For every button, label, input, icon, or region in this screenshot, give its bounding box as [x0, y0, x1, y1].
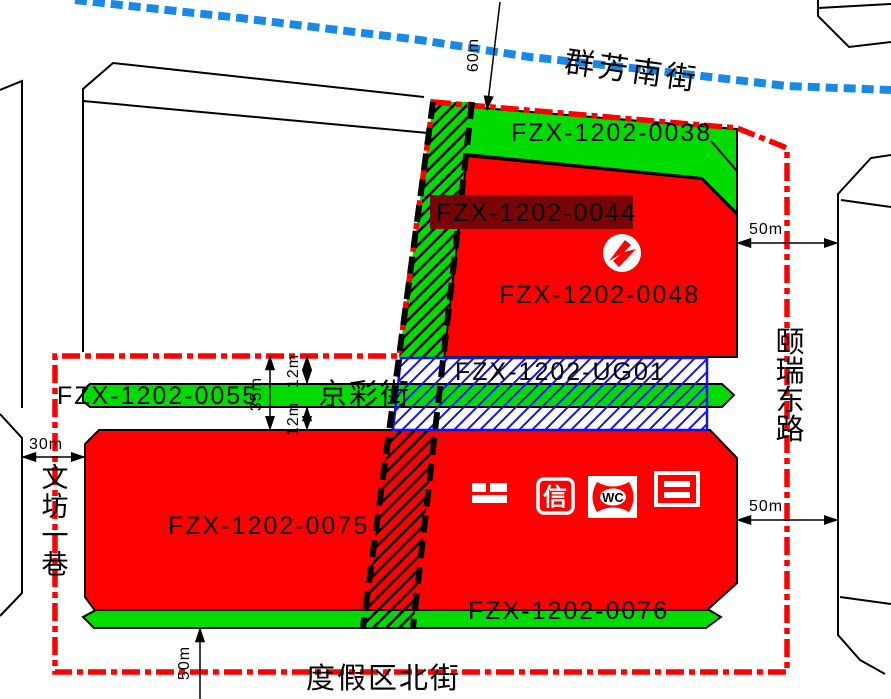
parcel-0075-label: FZX-1202-0075	[168, 512, 369, 540]
telecom-icon-char: 信	[543, 483, 567, 511]
dim-50m-east-top-label: 50m	[749, 221, 783, 238]
street-west-label: 文坊一巷	[42, 463, 69, 580]
parcel-0044-label: FZX-1202-0044	[436, 199, 637, 227]
parcel-0048-red[interactable]	[444, 156, 737, 357]
bg-parcel-northwest-inner	[83, 101, 428, 133]
north-road-centerline	[75, 0, 891, 90]
dim-12m-north-label: 12m	[285, 354, 302, 388]
dim-60m-label: 60m	[465, 38, 482, 72]
power-substation-icon	[603, 234, 641, 272]
bg-parcel-east-south-edge	[840, 597, 891, 604]
planning-map: 60m 50m 50m 50m 30m 35m 12m 12m 信	[0, 0, 891, 699]
bg-parcel-west-north	[0, 81, 22, 408]
dim-30m-label: 30m	[29, 436, 63, 453]
dim-12m-south-label: 12m	[285, 402, 302, 436]
dim-60m-line	[487, 2, 500, 110]
parcel-ug01-label: FZX-1202-UG01	[455, 358, 666, 386]
bg-parcel-east-inner	[841, 200, 891, 207]
bg-parcel-west-south	[0, 414, 22, 616]
parcel-0076-label: FZX-1202-0076	[468, 597, 669, 625]
street-middle-label: 京彩街	[318, 378, 411, 411]
street-north-label: 群芳南街	[562, 46, 701, 98]
bg-parcel-northeast-inner	[818, 4, 891, 8]
parcel-0038-label: FZX-1202-0038	[511, 119, 712, 147]
parcel-0048-label: FZX-1202-0048	[499, 281, 700, 309]
toilet-icon: WC	[588, 476, 637, 518]
planning-map-stage: 60m 50m 50m 50m 30m 35m 12m 12m 信	[0, 0, 891, 699]
street-east-label: 颐瑞东路	[775, 327, 804, 446]
dim-50m-south-label: 50m	[176, 646, 193, 680]
bg-parcel-east-outer	[838, 155, 891, 674]
toilet-icon-text: WC	[602, 490, 624, 505]
parcel-0055-label: FZX-1202-0055	[57, 382, 258, 410]
street-south-label: 度假区北街	[306, 662, 461, 695]
dim-50m-east-bottom-label: 50m	[749, 498, 783, 515]
